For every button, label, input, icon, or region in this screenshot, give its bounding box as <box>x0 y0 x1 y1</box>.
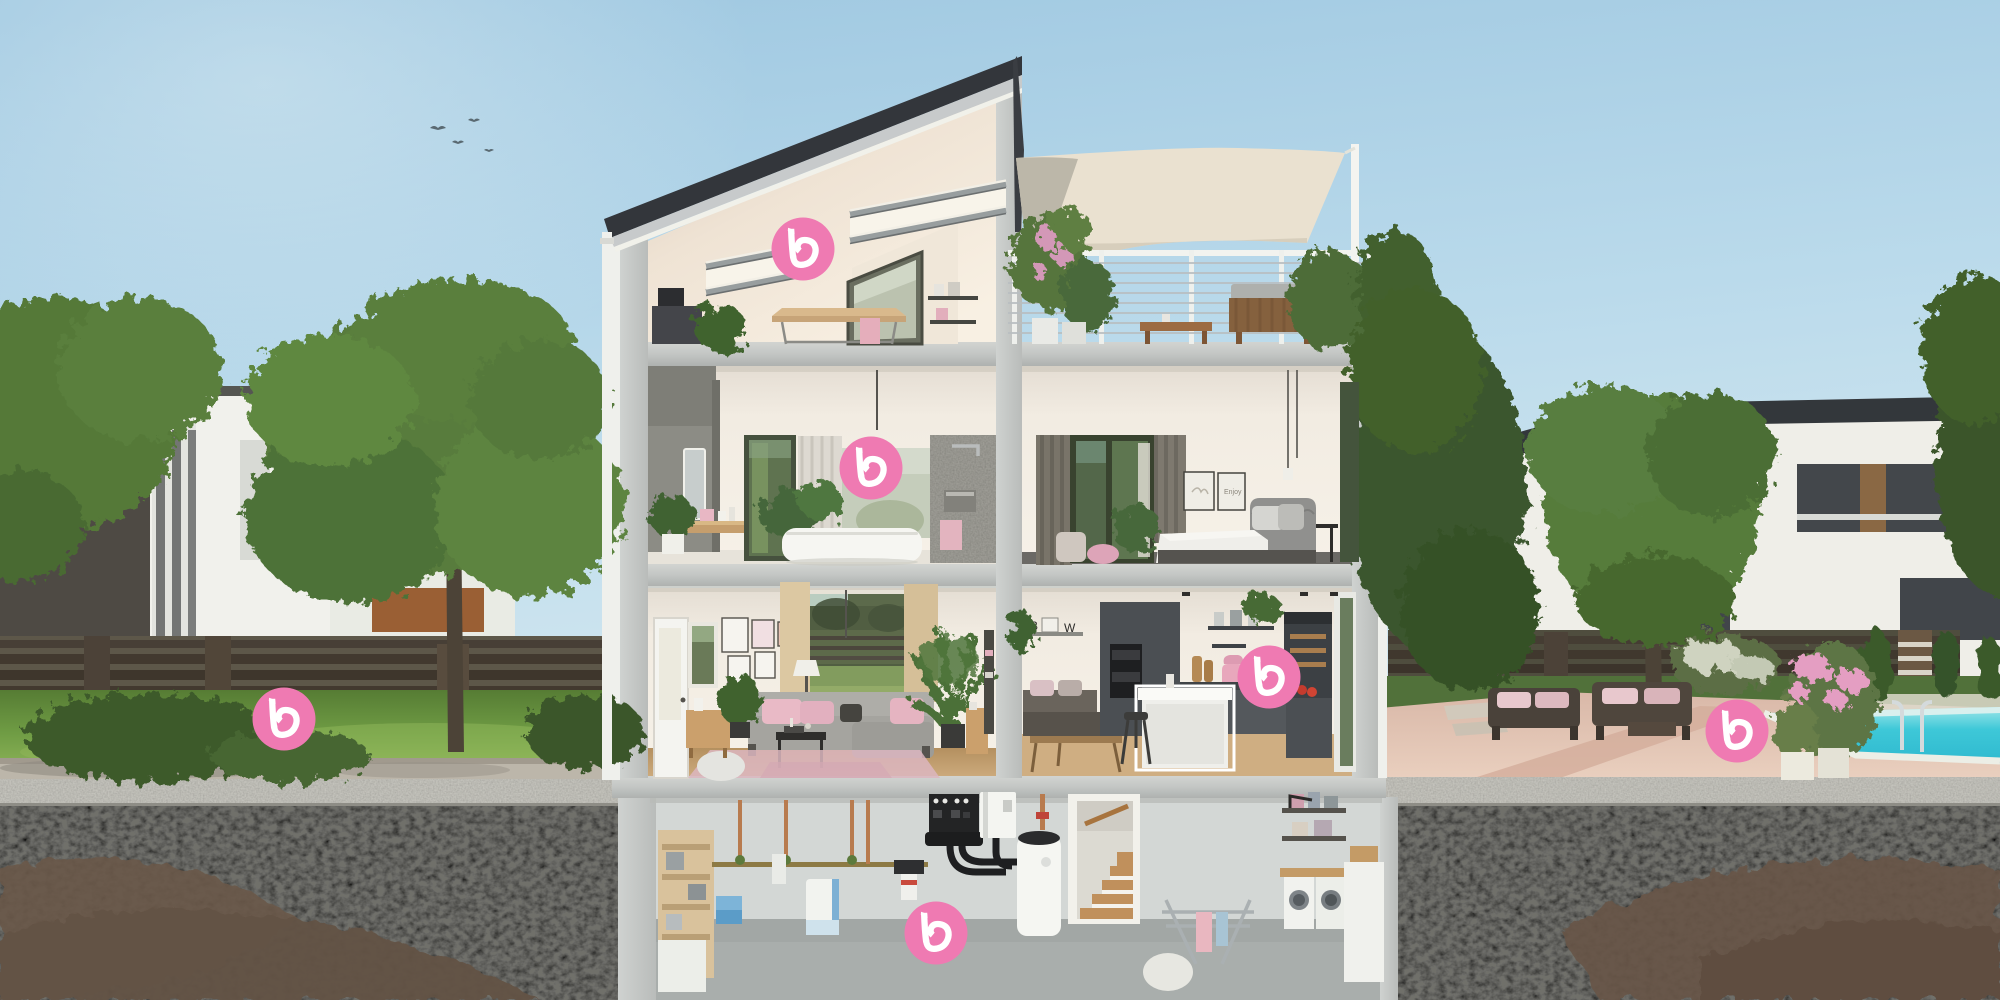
svg-text:W: W <box>1064 621 1076 635</box>
svg-text:Enjoy: Enjoy <box>1224 489 1242 496</box>
